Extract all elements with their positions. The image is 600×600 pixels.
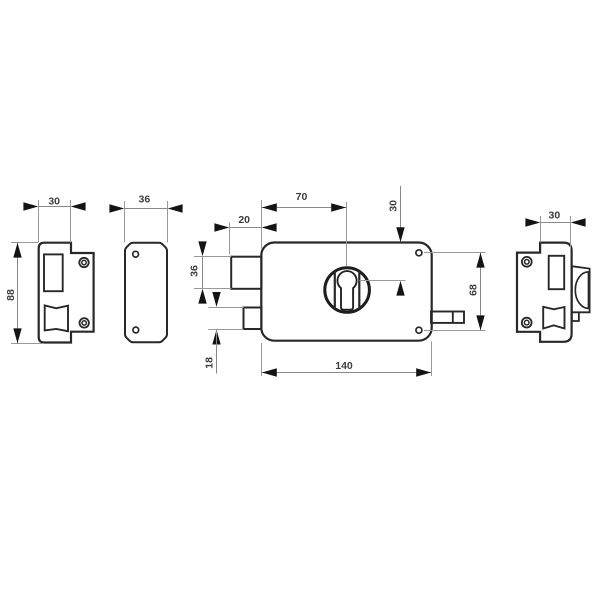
svg-text:70: 70 <box>296 191 308 203</box>
svg-text:20: 20 <box>238 214 250 226</box>
svg-text:30: 30 <box>387 200 399 212</box>
svg-text:88: 88 <box>5 289 17 301</box>
svg-text:30: 30 <box>48 196 60 208</box>
svg-text:36: 36 <box>139 194 151 206</box>
svg-text:30: 30 <box>549 210 561 222</box>
svg-text:68: 68 <box>468 284 480 296</box>
svg-text:36: 36 <box>189 265 201 277</box>
svg-text:18: 18 <box>203 357 215 369</box>
svg-text:140: 140 <box>335 360 353 372</box>
